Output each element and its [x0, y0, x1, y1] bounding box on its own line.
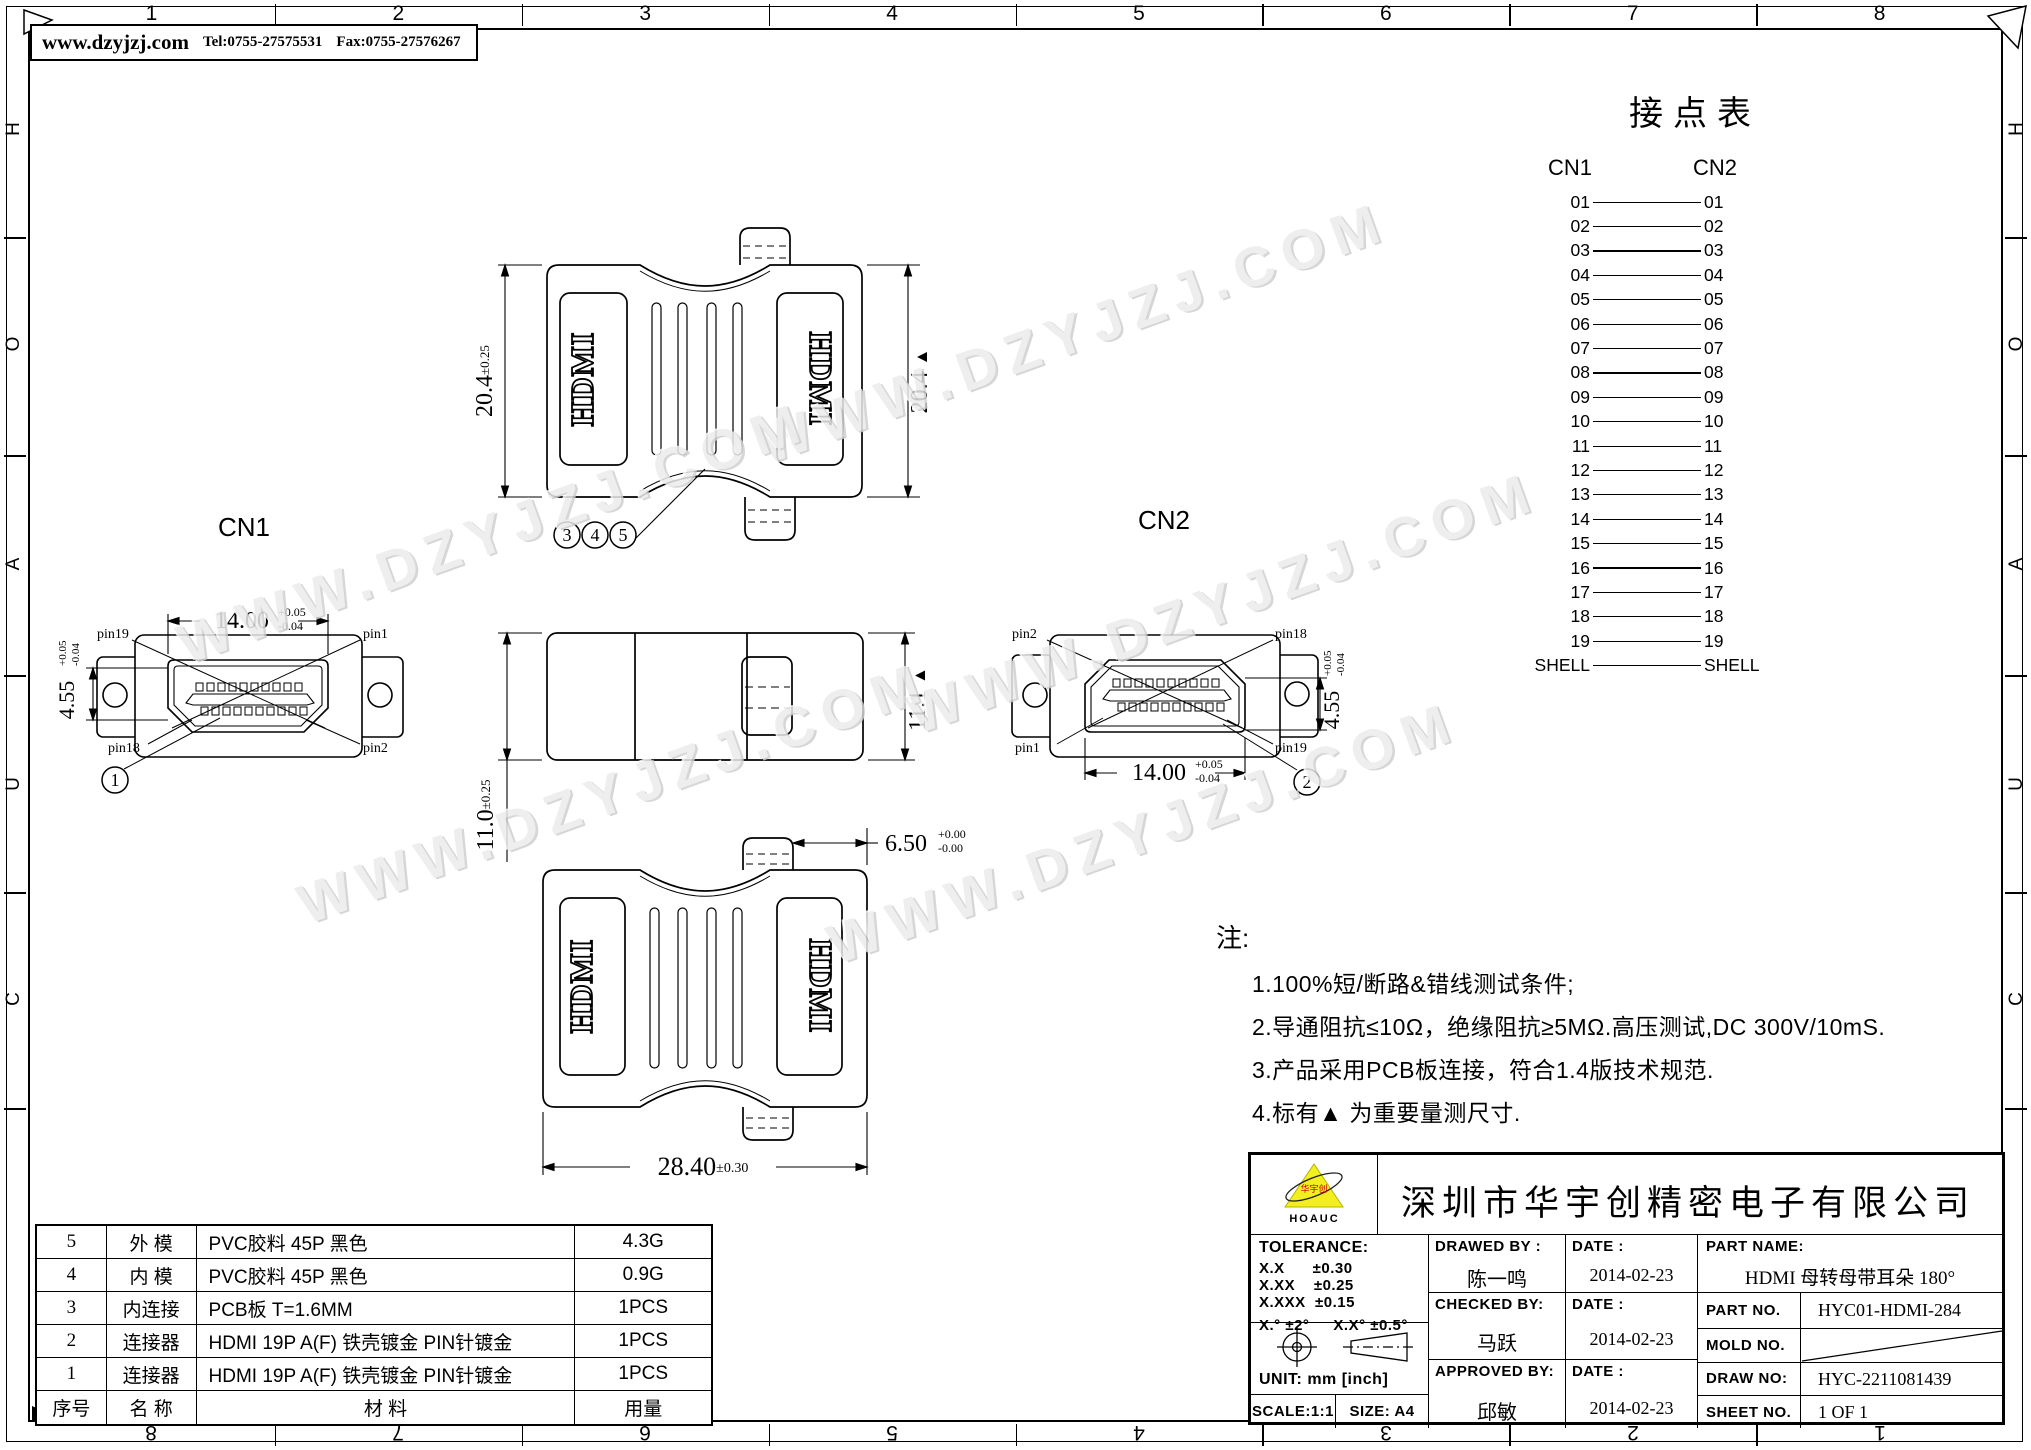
cn1-pin18-label: pin18	[108, 741, 140, 756]
callout-5: 5	[619, 525, 628, 545]
bom-cell: 1PCS	[575, 1358, 711, 1390]
junction-row: 1717	[1528, 580, 1774, 604]
bom-cell: HDMI 19P A(F) 铁壳镀金 PIN针镀金	[197, 1358, 576, 1390]
dim-cn2-width-text: 14.00	[1132, 760, 1186, 786]
junction-wire-line	[1593, 299, 1701, 300]
draw-no-label-cell: DRAW NO:	[1698, 1363, 1801, 1395]
frame-tick	[2005, 892, 2027, 894]
vendor-header: www.dzyjzj.com Tel:0755-27575531 Fax:075…	[30, 24, 478, 61]
date-cell-3: DATE : 2014-02-23	[1566, 1360, 1698, 1428]
projection-symbols-icon	[1259, 1325, 1421, 1369]
date-label: DATE :	[1572, 1363, 1691, 1380]
junction-wire-line	[1593, 592, 1701, 593]
sheet-no-value: 1 OF 1	[1818, 1402, 1868, 1423]
tolerance-line-2: X.XX ±0.25	[1259, 1277, 1420, 1294]
mold-no-label-cell: MOLD NO.	[1698, 1329, 1801, 1362]
junction-wire-line	[1593, 494, 1701, 495]
approved-by-label: APPROVED BY:	[1435, 1363, 1559, 1380]
junction-row: 0303	[1528, 239, 1774, 263]
hdmi-logo-text: HDMI	[563, 939, 599, 1034]
junction-cn2-pin: 09	[1704, 387, 1774, 408]
size-label: SIZE: A4	[1349, 1403, 1414, 1420]
junction-cn2-pin: 05	[1704, 289, 1774, 310]
logo-subtext: HOAUC	[1251, 1213, 1378, 1225]
junction-cn1-pin: 01	[1528, 192, 1590, 213]
bom-header-row: 序号名 称材 料用量	[37, 1391, 711, 1424]
junction-cn1-pin: 08	[1528, 362, 1590, 383]
vendor-website: www.dzyjzj.com	[42, 30, 189, 55]
part-no-value: HYC01-HDMI-284	[1818, 1300, 1961, 1321]
bom-cell: 连接器	[107, 1325, 197, 1357]
junction-row: 0101	[1528, 190, 1774, 214]
note-item-3: 3.产品采用PCB板连接，符合1.4版技术规范.	[1252, 1051, 2016, 1085]
junction-cn1-pin: 14	[1528, 509, 1590, 530]
frame-left-letter: A	[3, 553, 25, 575]
junction-cn2-pin: 18	[1704, 606, 1774, 627]
junction-row: 0909	[1528, 385, 1774, 409]
frame-left-letter: C	[3, 988, 25, 1010]
frame-tick	[4, 455, 26, 457]
frame-tick	[1262, 4, 1264, 26]
junction-row: 1616	[1528, 556, 1774, 580]
dim-cn1-height-tolup: +0.05	[57, 640, 69, 666]
junction-cn2-pin: SHELL	[1704, 655, 1774, 676]
frame-top-number: 3	[625, 2, 665, 26]
junction-wire-line	[1593, 543, 1701, 544]
unit-label: UNIT: mm [inch]	[1259, 1371, 1388, 1389]
frame-right-letter: O	[2006, 333, 2028, 355]
cn2-pin2-label: pin2	[1012, 627, 1037, 642]
dim-cn1-width-toldn: -0.04	[278, 619, 303, 633]
dim-cn2-height-text: 4.55	[1319, 691, 1344, 730]
junction-cn2-pin: 13	[1704, 484, 1774, 505]
bottom-view-drawing: HDMI HDMI 6.50 +0.00 -0.00 28.40±0.30	[470, 770, 1030, 1200]
date-label: DATE :	[1572, 1296, 1691, 1313]
bom-row: 2连接器HDMI 19P A(F) 铁壳镀金 PIN针镀金1PCS	[37, 1325, 711, 1358]
bom-cell: 序号	[37, 1391, 107, 1424]
date-value-2: 2014-02-23	[1572, 1329, 1691, 1350]
frame-tick	[1756, 4, 1758, 26]
junction-cn2-pin: 10	[1704, 411, 1774, 432]
frame-top-number: 4	[872, 2, 912, 26]
size-cell: SIZE: A4	[1336, 1395, 1429, 1428]
frame-tick	[2005, 237, 2027, 239]
cn1-pin2-label: pin2	[363, 741, 388, 756]
bom-row: 1连接器HDMI 19P A(F) 铁壳镀金 PIN针镀金1PCS	[37, 1358, 711, 1391]
bom-cell: 1PCS	[575, 1325, 711, 1357]
frame-tick	[275, 1424, 277, 1446]
cn1-view-label: CN1	[218, 512, 270, 543]
frame-tick	[522, 4, 524, 26]
part-no-row: PART NO. HYC01-HDMI-284	[1698, 1293, 2002, 1329]
junction-table-cn1-header: CN1	[1548, 155, 1592, 181]
company-row: 华宇创 HOAUC 深圳市华宇创精密电子有限公司	[1251, 1155, 2002, 1235]
frame-top-number: 6	[1366, 2, 1406, 26]
junction-row: 1414	[1528, 507, 1774, 531]
junction-wire-line	[1593, 446, 1701, 447]
frame-right-letter: H	[2006, 118, 2028, 140]
tolerance-box: TOLERANCE: X.X ±0.30 X.XX ±0.25 X.XXX ±0…	[1251, 1235, 1429, 1323]
callout-4: 4	[591, 525, 600, 545]
callout-3: 3	[563, 525, 572, 545]
junction-cn2-pin: 04	[1704, 265, 1774, 286]
logo-triangle-icon: 华宇创	[1281, 1161, 1347, 1213]
cn1-pin19-label: pin19	[97, 627, 129, 642]
bom-cell: 4.3G	[575, 1226, 711, 1258]
junction-cn2-pin: 19	[1704, 631, 1774, 652]
approved-by-cell: APPROVED BY: 邱敏	[1429, 1360, 1566, 1428]
junction-wire-line	[1593, 348, 1701, 349]
cn2-face-drawing: pin2 pin18 pin1 pin19 2 14.00 +0.05 -0.0…	[975, 598, 1425, 848]
frame-left-letter: U	[3, 773, 25, 795]
junction-row: 0808	[1528, 361, 1774, 385]
vendor-fax: Fax:0755-27576267	[336, 34, 460, 51]
part-name-value: HDMI 母转母带耳朵 180°	[1706, 1263, 1994, 1290]
dim-cn2-width-toldn: -0.04	[1195, 771, 1220, 785]
junction-row: 0404	[1528, 263, 1774, 287]
dim-tab-offset	[793, 828, 878, 865]
notes-section: 注: 1.100%短/断路&错线测试条件; 2.导通阻抗≤10Ω，绝缘阻抗≥5M…	[1216, 918, 2016, 1128]
dim-cn1-height-text: 4.55	[54, 681, 79, 720]
cn2-pin18-label: pin18	[1275, 627, 1307, 642]
callout-345: 3 4 5	[554, 469, 705, 548]
date-cell-2: DATE : 2014-02-23	[1566, 1293, 1698, 1360]
junction-row: 1818	[1528, 605, 1774, 629]
junction-wire-line	[1593, 324, 1701, 325]
hdmi-logo-text: HDMI	[803, 939, 839, 1034]
dim-cn2-height-toldn: -0.04	[1335, 653, 1347, 676]
junction-cn2-pin: 06	[1704, 314, 1774, 335]
part-name-label: PART NAME:	[1706, 1238, 1994, 1255]
dim-top-height	[498, 265, 542, 497]
junction-cn1-pin: 02	[1528, 216, 1590, 237]
dim-cn2-width-tolup: +0.05	[1195, 757, 1223, 771]
cn2-pin19-label: pin19	[1275, 741, 1307, 756]
bom-row: 3内连接PCB板 T=1.6MM1PCS	[37, 1292, 711, 1325]
junction-row: 0707	[1528, 336, 1774, 360]
title-block: 华宇创 HOAUC 深圳市华宇创精密电子有限公司 TOLERANCE: X.X …	[1248, 1152, 2005, 1425]
cn2-body	[1012, 635, 1318, 757]
junction-cn1-pin: 10	[1528, 411, 1590, 432]
junction-row: 1515	[1528, 531, 1774, 555]
tolerance-line-3: X.XXX ±0.15	[1259, 1294, 1420, 1311]
bom-cell: 用量	[575, 1391, 711, 1424]
frame-top-number: 2	[378, 2, 418, 26]
bom-cell: 0.9G	[575, 1259, 711, 1291]
frame-tick	[4, 892, 26, 894]
date-label: DATE :	[1572, 1238, 1691, 1255]
engineering-drawing-sheet: 1234567887654321HHOOAAUUCC www.dzyjzj.co…	[0, 0, 2031, 1450]
part-no-label-cell: PART NO.	[1698, 1293, 1801, 1328]
junction-cn1-pin: 07	[1528, 338, 1590, 359]
junction-cn2-pin: 03	[1704, 240, 1774, 261]
junction-cn1-pin: 15	[1528, 533, 1590, 554]
dim-tab-offset-toldn: -0.00	[938, 841, 963, 855]
junction-wire-line	[1593, 470, 1701, 471]
junction-cn1-pin: 19	[1528, 631, 1590, 652]
junction-wire-line	[1593, 641, 1701, 642]
draw-no-value: HYC-2211081439	[1818, 1369, 1951, 1390]
junction-wire-line	[1593, 421, 1701, 422]
frame-tick	[769, 4, 771, 26]
scale-label: SCALE:1:1	[1252, 1403, 1334, 1420]
frame-tick	[275, 4, 277, 26]
junction-cn2-pin: 14	[1704, 509, 1774, 530]
junction-cn1-pin: 17	[1528, 582, 1590, 603]
junction-cn2-pin: 01	[1704, 192, 1774, 213]
dim-body-width-text: 28.40±0.30	[658, 1152, 749, 1181]
junction-row: 0606	[1528, 312, 1774, 336]
dim-tab-offset-text: 6.50	[885, 831, 927, 857]
junction-wire-line	[1593, 397, 1701, 398]
scale-cell: SCALE:1:1	[1251, 1395, 1336, 1428]
junction-cn2-pin: 02	[1704, 216, 1774, 237]
junction-cn2-pin: 12	[1704, 460, 1774, 481]
bom-cell: 2	[37, 1325, 107, 1357]
frame-tick	[1016, 1424, 1018, 1446]
company-logo: 华宇创 HOAUC	[1251, 1155, 1378, 1234]
bom-row: 5外 模PVC胶料 45P 黑色4.3G	[37, 1226, 711, 1259]
junction-cn2-pin: 16	[1704, 558, 1774, 579]
frame-right-letter: A	[2006, 553, 2028, 575]
junction-cn2-pin: 11	[1704, 436, 1774, 457]
junction-table-cn2-header: CN2	[1693, 155, 1737, 181]
junction-wire-line	[1593, 519, 1701, 520]
bom-cell: PCB板 T=1.6MM	[197, 1292, 576, 1324]
bom-cell: 3	[37, 1292, 107, 1324]
company-name: 深圳市华宇创精密电子有限公司	[1401, 1175, 1975, 1226]
junction-cn2-pin: 08	[1704, 362, 1774, 383]
junction-row: 0505	[1528, 288, 1774, 312]
junction-row: 1919	[1528, 629, 1774, 653]
frame-tick	[4, 1108, 26, 1110]
cn1-body	[97, 635, 403, 757]
frame-top-number: 8	[1860, 2, 1900, 26]
drawed-by-label: DRAWED BY :	[1435, 1238, 1559, 1255]
junction-wire-line	[1593, 226, 1701, 227]
corner-mark-top-right-icon	[1982, 4, 2030, 50]
junction-row: 1212	[1528, 458, 1774, 482]
approved-by-name: 邱敏	[1435, 1396, 1559, 1425]
junction-cn1-pin: 18	[1528, 606, 1590, 627]
checked-by-name: 马跃	[1435, 1327, 1559, 1356]
junction-row: 1010	[1528, 410, 1774, 434]
dim-cn1-width-text: 14.00	[215, 608, 269, 634]
junction-wire-line	[1593, 372, 1701, 373]
frame-top-number: 5	[1119, 2, 1159, 26]
sheet-no-row: SHEET NO. 1 OF 1	[1698, 1396, 2002, 1428]
mold-no-row: MOLD NO.	[1698, 1329, 2002, 1363]
dim-cn2-height-tolup: +0.05	[1322, 650, 1334, 676]
dim-side-height-ref-text: 11.1▲	[905, 667, 931, 731]
part-name-cell: PART NAME: HDMI 母转母带耳朵 180°	[1698, 1235, 2002, 1293]
part-no-label: PART NO.	[1706, 1302, 1781, 1319]
junction-cn2-pin: 15	[1704, 533, 1774, 554]
frame-tick	[1016, 4, 1018, 26]
frame-left-letter: H	[3, 118, 25, 140]
note-item-1: 1.100%短/断路&错线测试条件;	[1252, 965, 2016, 999]
hdmi-logo-text: HDMI	[803, 332, 839, 427]
sheet-no-label-cell: SHEET NO.	[1698, 1396, 1801, 1428]
frame-tick	[769, 1424, 771, 1446]
frame-right-letter: U	[2006, 773, 2028, 795]
bom-cell: 5	[37, 1226, 107, 1258]
bom-cell: 连接器	[107, 1358, 197, 1390]
mold-no-label: MOLD NO.	[1706, 1337, 1785, 1354]
vendor-tel: Tel:0755-27575531	[203, 34, 322, 51]
frame-left-letter: O	[3, 333, 25, 355]
cn2-view-label: CN2	[1138, 505, 1190, 536]
frame-tick	[2005, 675, 2027, 677]
bom-cell: 名 称	[107, 1391, 197, 1424]
junction-cn1-pin: 11	[1528, 436, 1590, 457]
callout-2: 2	[1303, 772, 1312, 792]
frame-top-number: 7	[1613, 2, 1653, 26]
junction-cn2-pin: 17	[1704, 582, 1774, 603]
date-value-1: 2014-02-23	[1572, 1265, 1691, 1286]
bottom-latch-tab	[745, 497, 795, 540]
bom-cell: PVC胶料 45P 黑色	[197, 1226, 576, 1258]
frame-tick	[4, 237, 26, 239]
dim-cn1-height-toldn: -0.04	[70, 643, 82, 666]
mold-no-blank-strike	[1802, 1329, 2002, 1362]
junction-row: 0202	[1528, 214, 1774, 238]
dim-tab-offset-tolup: +0.00	[938, 827, 966, 841]
tolerance-label: TOLERANCE:	[1259, 1239, 1420, 1257]
checked-by-label: CHECKED BY:	[1435, 1296, 1559, 1313]
date-cell-1: DATE : 2014-02-23	[1566, 1235, 1698, 1293]
top-view-drawing: HDMI HDMI 20.4±0.25 20.4▲ 3 4 5	[480, 198, 960, 570]
frame-bottom-number: 4	[1119, 1420, 1159, 1444]
junction-wire-line	[1593, 202, 1701, 203]
date-value-3: 2014-02-23	[1572, 1398, 1691, 1419]
junction-row: 1313	[1528, 483, 1774, 507]
bom-cell: PVC胶料 45P 黑色	[197, 1259, 576, 1291]
frame-tick	[1509, 4, 1511, 26]
checked-by-cell: CHECKED BY: 马跃	[1429, 1293, 1566, 1360]
bom-table: 5外 模PVC胶料 45P 黑色4.3G4内 模PVC胶料 45P 黑色0.9G…	[35, 1224, 713, 1426]
frame-tick	[522, 1424, 524, 1446]
junction-wire-line	[1593, 567, 1701, 568]
junction-table-rows: 0101020203030404050506060707080809091010…	[1528, 190, 1774, 678]
draw-no-label: DRAW NO:	[1706, 1370, 1788, 1387]
junction-wire-line	[1593, 275, 1701, 276]
junction-row: SHELLSHELL	[1528, 653, 1774, 677]
junction-wire-line	[1593, 665, 1701, 666]
junction-cn1-pin: 12	[1528, 460, 1590, 481]
bom-cell: 外 模	[107, 1226, 197, 1258]
side-body	[547, 633, 863, 760]
cn1-face-drawing: pin19 pin1 pin18 pin2 1 14.00 +0.05 -0.0…	[60, 588, 480, 828]
junction-table-title: 接点表	[1560, 86, 1830, 135]
bom-cell: 内 模	[107, 1259, 197, 1291]
hdmi-logo-text: HDMI	[564, 332, 600, 427]
notes-title: 注:	[1216, 918, 2016, 955]
drawed-by-name: 陈一鸣	[1435, 1263, 1559, 1292]
junction-cn1-pin: 09	[1528, 387, 1590, 408]
draw-no-row: DRAW NO: HYC-2211081439	[1698, 1363, 2002, 1396]
bottom-latch-tab	[743, 1107, 793, 1140]
projection-box: UNIT: mm [inch]	[1251, 1323, 1429, 1395]
bom-cell: 内连接	[107, 1292, 197, 1324]
junction-wire-line	[1593, 250, 1701, 251]
junction-cn1-pin: 03	[1528, 240, 1590, 261]
bom-cell: 1PCS	[575, 1292, 711, 1324]
frame-top-number: 1	[131, 2, 171, 26]
bom-row: 4内 模PVC胶料 45P 黑色0.9G	[37, 1259, 711, 1292]
frame-tick	[4, 675, 26, 677]
logo-text: 华宇创	[1300, 1183, 1327, 1194]
cn2-pin1-label: pin1	[1015, 741, 1040, 756]
note-item-2: 2.导通阻抗≤10Ω，绝缘阻抗≥5MΩ.高压测试,DC 300V/10mS.	[1252, 1008, 2016, 1042]
cn1-pin1-label: pin1	[363, 627, 388, 642]
frame-tick	[2005, 455, 2027, 457]
junction-cn2-pin: 07	[1704, 338, 1774, 359]
junction-cn1-pin: 06	[1528, 314, 1590, 335]
callout-1: 1	[111, 770, 120, 790]
bom-cell: HDMI 19P A(F) 铁壳镀金 PIN针镀金	[197, 1325, 576, 1357]
junction-wire-line	[1593, 616, 1701, 617]
bom-cell: 1	[37, 1358, 107, 1390]
dim-top-height-ref-text: 20.4▲	[907, 349, 933, 414]
tolerance-line-1: X.X ±0.30	[1259, 1260, 1420, 1277]
bom-cell: 材 料	[197, 1391, 576, 1424]
drawed-by-cell: DRAWED BY : 陈一鸣	[1429, 1235, 1566, 1293]
junction-cn1-pin: SHELL	[1528, 655, 1590, 676]
sheet-no-label: SHEET NO.	[1706, 1404, 1791, 1421]
junction-cn1-pin: 16	[1528, 558, 1590, 579]
note-item-4: 4.标有▲ 为重要量测尺寸.	[1252, 1094, 2016, 1128]
junction-cn1-pin: 13	[1528, 484, 1590, 505]
bom-cell: 4	[37, 1259, 107, 1291]
frame-bottom-number: 5	[872, 1420, 912, 1444]
junction-cn1-pin: 05	[1528, 289, 1590, 310]
junction-cn1-pin: 04	[1528, 265, 1590, 286]
junction-row: 1111	[1528, 434, 1774, 458]
dim-cn1-width-tolup: +0.05	[278, 605, 306, 619]
